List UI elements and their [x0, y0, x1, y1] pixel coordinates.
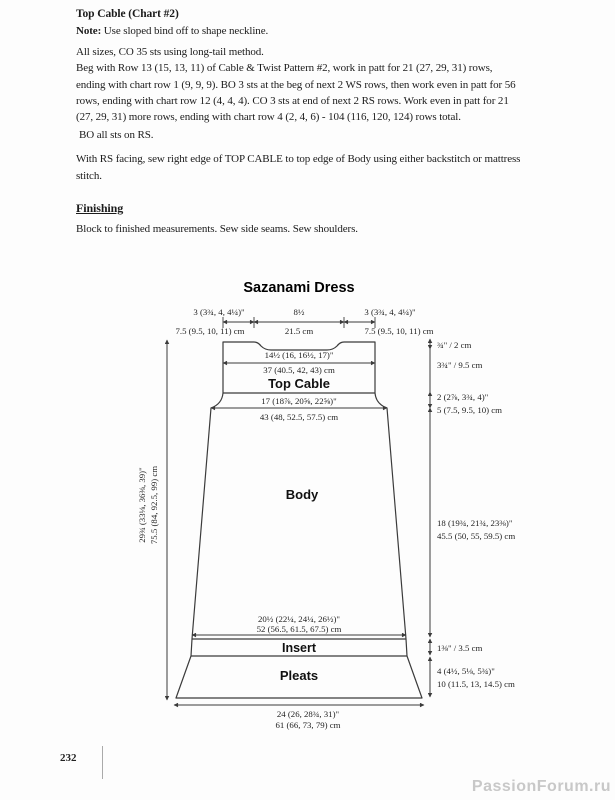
- pleats-height-cm: 10 (11.5, 13, 14.5) cm: [437, 679, 515, 689]
- page-number-divider: [102, 746, 103, 779]
- pattern-line-1: All sizes, CO 35 sts using long-tail met…: [76, 44, 556, 60]
- bind-off-line: BO all sts on RS.: [76, 127, 556, 143]
- watermark: PassionForum.ru: [472, 778, 611, 796]
- neck-drop-dim: ¾" / 2 cm: [437, 340, 472, 350]
- finishing-text: Block to finished measurements. Sew side…: [76, 221, 556, 237]
- body-top-cm: 43 (48, 52.5, 57.5) cm: [260, 412, 338, 422]
- pattern-paragraph: All sizes, CO 35 sts using long-tail met…: [76, 44, 556, 126]
- cable-width-in: 14½ (16, 16½, 17)": [265, 350, 334, 360]
- section-heading: Top Cable (Chart #2): [76, 6, 556, 22]
- top-cable-label: Top Cable: [268, 376, 330, 391]
- body-length-in: 18 (19¾, 21¾, 23⅜)": [437, 518, 513, 528]
- cable-width-cm: 37 (40.5, 42, 43) cm: [263, 365, 335, 375]
- instructions-section: Top Cable (Chart #2) Note: Use sloped bi…: [76, 6, 556, 238]
- flare-cm: 5 (7.5, 9.5, 10) cm: [437, 405, 502, 415]
- note-text: Use sloped bind off to shape neckline.: [101, 25, 268, 37]
- pattern-line-3: ending with chart row 1 (9, 9, 9). BO 3 …: [76, 77, 556, 93]
- pleats-height-in: 4 (4½, 5⅛, 5¾)": [437, 666, 495, 676]
- insert-label: Insert: [282, 641, 317, 655]
- cable-height-dim: 3¾" / 9.5 cm: [437, 360, 483, 370]
- neck-width-in: 8½: [294, 307, 305, 317]
- insert-width-cm: 52 (56.5, 61.5, 67.5) cm: [257, 624, 342, 634]
- pattern-line-2: Beg with Row 13 (15, 13, 11) of Cable & …: [76, 60, 556, 76]
- insert-height-dim: 1⅜" / 3.5 cm: [437, 643, 483, 653]
- seam-line-1: With RS facing, sew right edge of TOP CA…: [76, 151, 556, 167]
- hem-width-in: 24 (26, 28¾, 31)": [277, 709, 340, 719]
- body-length-cm: 45.5 (50, 55, 59.5) cm: [437, 531, 515, 541]
- neck-width-cm: 21.5 cm: [285, 326, 313, 336]
- note-line: Note: Use sloped bind off to shape neckl…: [76, 23, 556, 39]
- flare-in: 2 (2⅞, 3¾, 4)": [437, 392, 489, 402]
- hem-width-cm: 61 (66, 73, 79) cm: [276, 720, 341, 730]
- shoulder-right-in: 3 (3¾, 4, 4¼)": [364, 307, 416, 317]
- pleats-label: Pleats: [280, 668, 318, 683]
- pattern-line-4: rows, ending with chart row 12 (4, 4, 4)…: [76, 93, 556, 109]
- insert-width-in: 20½ (22¼, 24¼, 26½)": [258, 614, 340, 624]
- total-length-cm: 75.5 (84, 92.5, 99) cm: [149, 466, 159, 544]
- note-label: Note:: [76, 25, 101, 37]
- total-length-in: 29¾ (33⅛, 36⅜, 39)": [137, 467, 147, 543]
- body-top-in: 17 (18⅞, 20⅝, 22⅝)": [261, 396, 337, 406]
- pattern-line-5: (27, 29, 31) more rows, ending with char…: [76, 109, 556, 125]
- shoulder-left-cm: 7.5 (9.5, 10, 11) cm: [175, 326, 244, 336]
- body-label: Body: [286, 487, 319, 502]
- dress-schematic: Sazanami Dress 3 (3¾, 4, 4¼)" 7.5 (9.5, …: [118, 268, 608, 748]
- shoulder-right-cm: 7.5 (9.5, 10, 11) cm: [364, 326, 433, 336]
- finishing-heading: Finishing: [76, 200, 556, 216]
- shoulder-left-in: 3 (3¾, 4, 4¼)": [193, 307, 245, 317]
- seam-paragraph: With RS facing, sew right edge of TOP CA…: [76, 151, 556, 184]
- schematic-title: Sazanami Dress: [243, 280, 354, 296]
- page-number: 232: [60, 752, 77, 764]
- seam-line-2: stitch.: [76, 168, 556, 184]
